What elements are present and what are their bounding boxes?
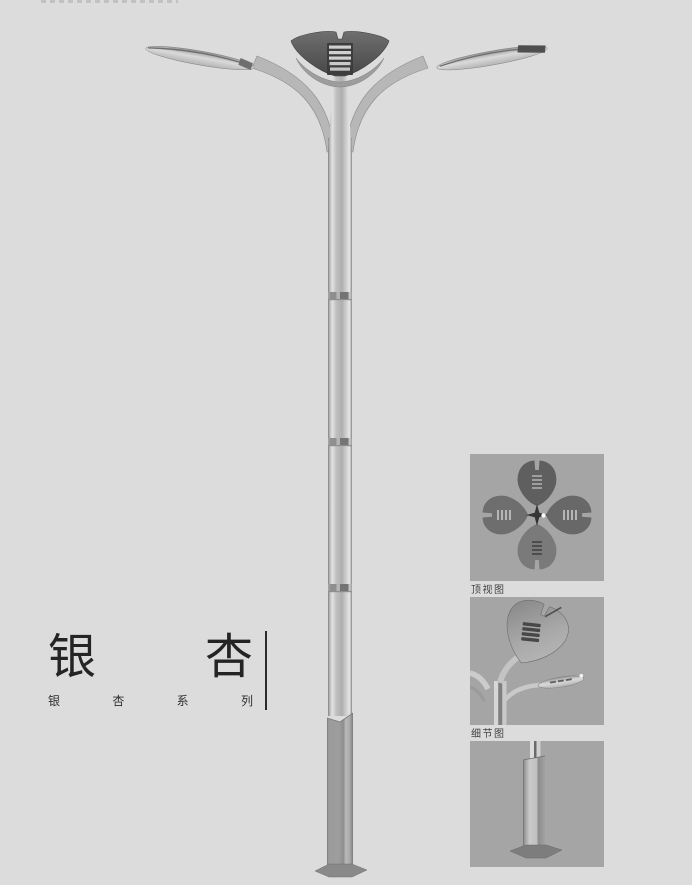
base-plate	[315, 864, 367, 877]
detail-pole-rails	[494, 681, 507, 725]
title-char-1: 银	[48, 633, 96, 682]
title-char-2: 杏	[205, 633, 253, 682]
base-view-column	[523, 756, 545, 851]
detail-view-panel	[470, 597, 604, 725]
crown-louvers	[327, 43, 353, 75]
base-column	[327, 713, 353, 866]
series-title: 银 杏	[48, 633, 253, 682]
title-divider-line	[265, 631, 267, 710]
catalog-page: 银 杏 银 杏 系 列	[0, 0, 692, 885]
lamp-head-right	[435, 40, 548, 74]
base-view-panel	[470, 741, 604, 867]
lamp-pole	[328, 138, 352, 716]
subtitle-char-4: 列	[241, 692, 253, 709]
subtitle-char-2: 杏	[112, 692, 124, 709]
top-view-highlight-dot	[541, 513, 545, 517]
detail-view-caption: 细节图	[471, 729, 604, 740]
lamp-head-left	[145, 42, 256, 75]
series-subtitle: 银 杏 系 列	[48, 692, 253, 709]
detail-panel-column: 顶视图	[470, 454, 604, 867]
top-view-caption: 顶视图	[471, 585, 604, 596]
subtitle-char-3: 系	[177, 692, 189, 709]
top-view-panel	[470, 454, 604, 581]
title-block: 银 杏 银 杏 系 列	[48, 633, 253, 709]
subtitle-char-1: 银	[48, 692, 60, 709]
